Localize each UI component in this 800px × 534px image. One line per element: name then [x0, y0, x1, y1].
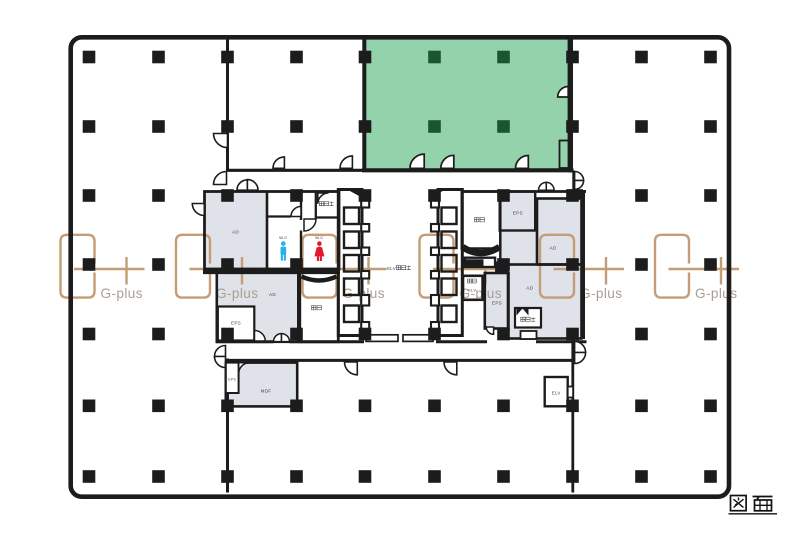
svg-text:EPS: EPS: [492, 300, 502, 305]
svg-text:EPS: EPS: [231, 321, 241, 326]
svg-text:W.C: W.C: [279, 235, 287, 240]
svg-text:G-plus: G-plus: [216, 286, 258, 301]
svg-text:EPS: EPS: [228, 378, 236, 382]
svg-text:ELV: ELV: [468, 288, 476, 293]
svg-text:G-plus: G-plus: [101, 286, 143, 301]
svg-text:AD: AD: [550, 246, 557, 251]
svg-text:ELV: ELV: [552, 391, 561, 396]
svg-text:MDF: MDF: [261, 389, 272, 394]
svg-text:AD: AD: [269, 292, 276, 297]
svg-text:W.C: W.C: [315, 235, 323, 240]
svg-text:AD: AD: [526, 286, 533, 291]
svg-text:ELV: ELV: [387, 266, 396, 271]
svg-text:EPS: EPS: [513, 211, 523, 216]
svg-text:G-plus: G-plus: [580, 286, 622, 301]
svg-text:AD: AD: [232, 230, 239, 235]
